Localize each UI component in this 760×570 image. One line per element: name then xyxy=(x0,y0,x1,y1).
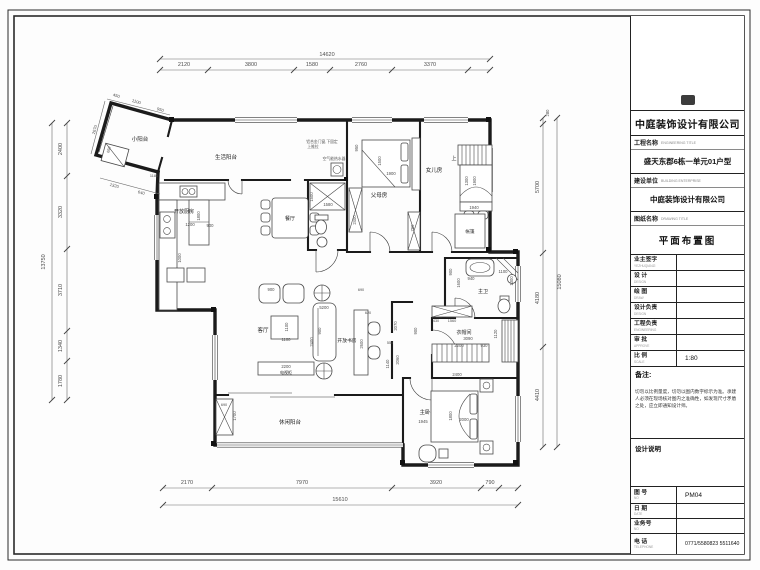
dimension-text: 3370 xyxy=(424,62,436,68)
dimension-text: 950 xyxy=(354,144,359,152)
dimension-text: 750 xyxy=(410,224,415,232)
row-value xyxy=(677,319,744,334)
dimension-text: 1100 xyxy=(131,98,142,105)
row-design-lead: 设计负责DESIGN xyxy=(631,303,744,319)
dimension-text: 900 xyxy=(207,223,215,228)
row-label: 绘 图 xyxy=(634,290,676,296)
balcony-kitchen-divider xyxy=(158,120,172,172)
row-label-en: YEZHUQIANZI xyxy=(634,265,676,268)
drawing-label-row: 图纸名称 DRAWING TITLE xyxy=(631,212,744,226)
project-label: 工程名称 xyxy=(634,138,658,147)
dimension-text: 1800 xyxy=(448,411,453,421)
row-label: 审 批 xyxy=(634,338,676,344)
dimension-text: 1340 xyxy=(58,340,64,352)
dimension-text: 690 xyxy=(358,288,364,292)
dimension-text: 3710 xyxy=(58,284,64,296)
dimension-text: 4410 xyxy=(535,389,541,401)
dimension-text: 620 xyxy=(365,311,371,315)
dimension-text: 5200 xyxy=(319,305,329,310)
row-label-en: NO xyxy=(634,528,676,531)
row-value xyxy=(677,335,744,350)
dimension-text: 900 xyxy=(448,268,453,276)
room-label-open-study: 开放书房 xyxy=(337,337,356,344)
dimension-text: 13750 xyxy=(41,254,47,269)
room-label-parents-room: 父母房 xyxy=(371,191,388,199)
dimension-text: 900 xyxy=(413,327,418,335)
room-label-living-room: 客厅 xyxy=(257,326,269,334)
dimension-text: 1500 xyxy=(309,192,314,202)
wardrobe xyxy=(502,320,518,362)
builder-label-en: BUILDING ENTERPRISE xyxy=(661,179,701,183)
remark-block: 备注: 切勿以比例量度，切勿以图内数字标示为准。承建人必须在现场核对图内之准确性… xyxy=(631,367,744,439)
title-block-logo-area xyxy=(631,16,744,111)
row-label-en: NO xyxy=(634,497,676,500)
dimension-lines xyxy=(49,56,560,508)
study-furniture xyxy=(354,310,380,375)
drawing-label-en: DRAWING TITLE xyxy=(661,217,688,221)
room-label-leisure-balcony: 休闲阳台 xyxy=(279,418,302,426)
dimension-text: 1300 xyxy=(464,176,469,186)
row-label-en: DRAW xyxy=(634,297,676,300)
dimension-text: 1600 xyxy=(456,278,461,288)
drawing-sheet: { "title_block": { "company": "中庭装饰设计有限公… xyxy=(0,0,760,570)
row-label: 业主签字 xyxy=(634,258,676,264)
living-room-furniture xyxy=(258,284,336,379)
row-value xyxy=(677,504,744,518)
toilet-tank xyxy=(315,215,328,220)
row-business-no: 业务号NO xyxy=(631,519,744,534)
dimension-text: 2200 xyxy=(454,343,464,348)
dimension-text: 1780 xyxy=(58,375,64,387)
label-stairs-up: 上 xyxy=(451,155,456,162)
dimension-text: 1580 xyxy=(306,62,318,68)
dimension-text: 900 xyxy=(317,327,322,335)
row-label-en: SCALE xyxy=(634,361,676,364)
armchair xyxy=(419,445,436,462)
dimension-text: 1180 xyxy=(150,174,158,178)
row-label: 设 计 xyxy=(634,274,676,280)
row-scale: 比 例SCALE 1:80 xyxy=(631,351,744,367)
dimension-text: 900 xyxy=(268,287,276,292)
row-value xyxy=(677,519,744,533)
builder-label: 建设单位 xyxy=(634,176,658,185)
room-label-small-balcony: 小阳台 xyxy=(132,135,149,143)
dimension-text: 7970 xyxy=(296,480,308,486)
label-tv-cabinet: 电视柜 xyxy=(280,369,292,375)
dimension-text: 2070 xyxy=(393,321,398,331)
dimension-text: 1940 xyxy=(469,205,479,210)
row-label-en: DESIGN xyxy=(634,313,676,316)
row-approve: 审 批APPROVE xyxy=(631,335,744,351)
builder-label-row: 建设单位 BUILDING ENTERPRISE xyxy=(631,174,744,188)
sliding-door xyxy=(228,393,335,397)
dimension-text: 1580 xyxy=(323,202,333,207)
row-telephone: 电 话TELEPHONE 0771/5580823 5511640 xyxy=(631,534,744,554)
dimension-text: 4180 xyxy=(535,292,541,304)
dimension-text: 3920 xyxy=(430,480,442,486)
toilet xyxy=(316,220,327,234)
telephone-value: 0771/5580823 5511640 xyxy=(677,534,744,554)
stairs xyxy=(458,145,492,165)
dimension-text: 2060 xyxy=(395,355,400,365)
dimension-text: 14620 xyxy=(319,52,334,58)
dimension-text: 3800 xyxy=(245,62,257,68)
row-label: 比 例 xyxy=(634,354,676,360)
master-bedroom-furniture xyxy=(419,379,493,462)
room-label-master-bedroom: 主卧 xyxy=(419,408,431,416)
dimension-text: 2400 xyxy=(452,372,462,377)
drawing-number: PM04 xyxy=(677,487,744,503)
remark-label: 备注: xyxy=(635,370,740,380)
dimension-text: 1100 xyxy=(281,337,291,342)
dimension-text: 2000 xyxy=(459,417,469,422)
room-label-daughter-room: 女儿房 xyxy=(426,166,443,174)
dimension-text: 940 xyxy=(468,276,476,281)
room-label-cloakroom: 衣帽间 xyxy=(456,329,471,336)
room-label-master-bath: 主卫 xyxy=(478,288,488,295)
dimension-text: 2400 xyxy=(352,215,357,225)
dimension-text: 3090 xyxy=(463,336,473,341)
remark-text: 切勿以比例量度，切勿以图内数字标示为准。承建人必须在现场核对图内之准确性，如发现… xyxy=(635,388,740,409)
dimension-text: 1900 xyxy=(472,176,477,186)
room-label-service-balcony: 生活阳台 xyxy=(215,153,238,161)
nightstand xyxy=(480,379,493,392)
row-label-en: DATE xyxy=(634,513,676,516)
dimension-text: 1945 xyxy=(418,419,428,424)
company-name: 中庭装饰设计有限公司 xyxy=(631,111,744,136)
room-label-dining: 餐厅 xyxy=(285,215,295,222)
nightstand xyxy=(480,441,493,454)
dimension-text: 1000 xyxy=(177,253,182,263)
dimension-text: 1500 xyxy=(377,156,382,166)
dimension-text: 1700 xyxy=(232,411,237,421)
toilet xyxy=(498,299,510,313)
row-label-en: APPROVE xyxy=(634,345,676,348)
builder-name: 中庭装饰设计有限公司 xyxy=(631,188,744,212)
dimension-text: 690 xyxy=(221,403,227,407)
dimension-text: 2760 xyxy=(355,62,367,68)
dimension-text: 2400 xyxy=(58,143,64,155)
row-label-en: DESIGN xyxy=(634,281,676,284)
dimension-text: 15080 xyxy=(557,274,563,289)
row-label: 图 号 xyxy=(634,491,676,497)
dimension-text: 280 xyxy=(545,109,550,117)
dimension-text: 2200 xyxy=(281,364,291,369)
dimension-text: 640 xyxy=(137,189,146,196)
scale-value: 1:80 xyxy=(677,351,744,366)
row-value xyxy=(677,255,744,270)
dimension-text: 3320 xyxy=(58,206,64,218)
row-value xyxy=(677,287,744,302)
project-label-en: ENGINEERING TITLE xyxy=(661,141,696,145)
row-label: 设计负责 xyxy=(634,306,676,312)
dimension-text: 1100 xyxy=(284,322,289,332)
armchair xyxy=(283,284,304,303)
row-label-en: TELEPHONE xyxy=(634,546,676,549)
drawing-label: 图纸名称 xyxy=(634,214,658,223)
dimension-text: 2120 xyxy=(178,62,190,68)
kitchen-counter xyxy=(159,183,225,310)
note-window-2: 上推拉 xyxy=(307,144,319,149)
drawing-title: 平面布置图 xyxy=(631,226,744,255)
row-date: 日 期DATE xyxy=(631,504,744,519)
project-name: 盛天东郡6栋一单元01户型 xyxy=(631,150,744,174)
dimension-text: 15610 xyxy=(332,497,347,503)
washbasin xyxy=(317,237,327,247)
row-label: 工程负责 xyxy=(634,322,676,328)
dimension-text: 2400 xyxy=(309,337,314,347)
project-label-row: 工程名称 ENGINEERING TITLE xyxy=(631,136,744,150)
chair xyxy=(368,322,380,335)
dimension-text: 1900 xyxy=(386,171,396,176)
dimension-text: 1300 xyxy=(509,276,514,286)
note-heater: 空气能热水器 xyxy=(323,156,346,161)
dimension-text: 550 xyxy=(387,341,393,345)
dimension-text: 1140 xyxy=(385,359,390,369)
dimension-text: 1560 xyxy=(448,319,456,323)
design-note-block: 设计说明 xyxy=(631,439,744,487)
kitchen-sink xyxy=(180,186,197,197)
row-value xyxy=(677,303,744,318)
row-label-en: ENGINEERING xyxy=(634,329,676,332)
row-engineering-lead: 工程负责ENGINEERING xyxy=(631,319,744,335)
row-design: 设 计DESIGN xyxy=(631,271,744,287)
guest-bathroom xyxy=(310,183,345,247)
room-label-open-kitchen: 开放厨房 xyxy=(174,208,194,215)
dimension-text: 1800 xyxy=(196,211,201,221)
dimension-text: 1200 xyxy=(185,222,195,227)
note-window: 铝合金门窗,下固定 xyxy=(306,139,338,144)
dimension-text: 450 xyxy=(112,92,121,99)
company-logo xyxy=(681,95,695,105)
dimension-text: 430 xyxy=(433,319,439,323)
dimension-text: 1120 xyxy=(493,329,498,339)
dimension-text: 2600 xyxy=(359,339,364,349)
dimension-text: 930 xyxy=(481,343,489,348)
dimension-text: 1100 xyxy=(498,269,508,274)
chair xyxy=(368,346,380,359)
row-value xyxy=(677,271,744,286)
row-owner-signature: 业主签字YEZHUQIANZI xyxy=(631,255,744,271)
row-label: 业务号 xyxy=(634,522,676,528)
row-drawing-no: 图 号NO PM04 xyxy=(631,487,744,504)
floor-plan: 小阳台生活阳台开放厨房餐厅父母房女儿房帐篷主卫衣帽间主卧客厅开放书房休闲阳台电视… xyxy=(41,52,563,508)
dimension-text: 790 xyxy=(485,480,494,486)
dimension-text: 2170 xyxy=(181,480,193,486)
label-tent: 帐篷 xyxy=(466,228,475,235)
title-block: 中庭装饰设计有限公司 工程名称 ENGINEERING TITLE 盛天东郡6栋… xyxy=(630,16,744,554)
row-draw: 绘 图DRAW xyxy=(631,287,744,303)
dimension-text: 5700 xyxy=(535,181,541,193)
